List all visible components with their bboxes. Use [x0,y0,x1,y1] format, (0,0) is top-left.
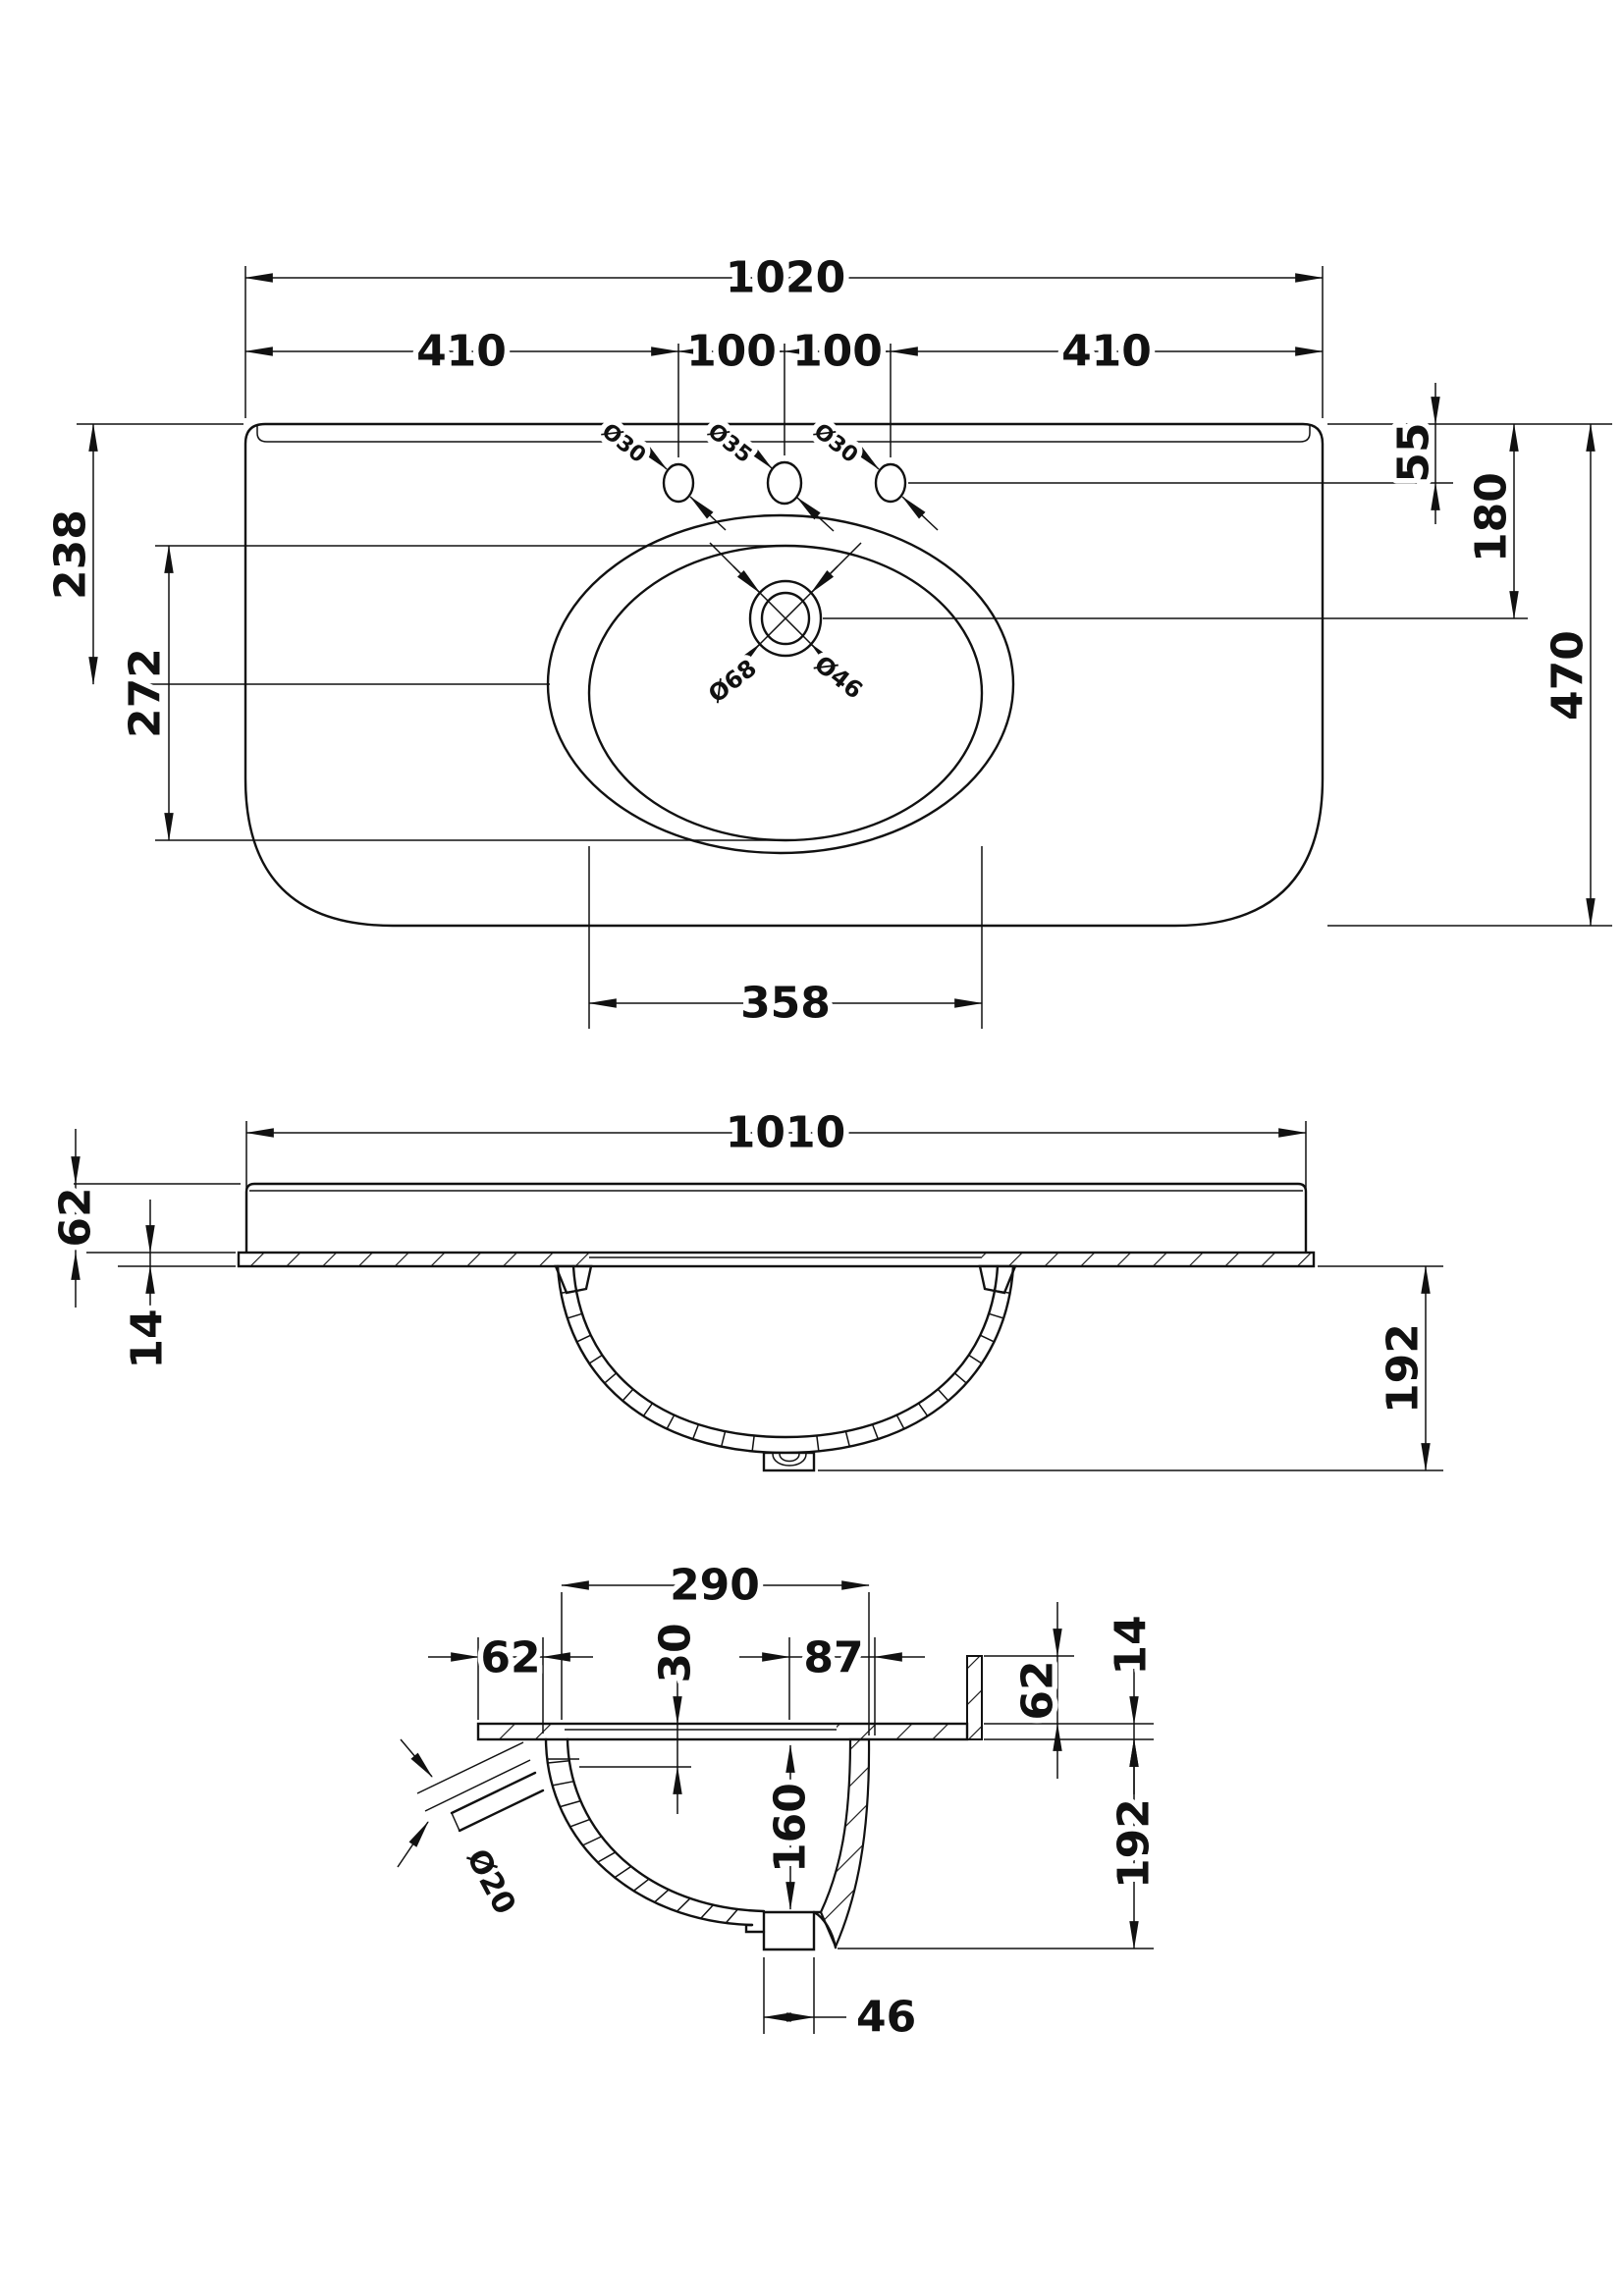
dim-side-counter-thickness: 14 [984,1615,1157,1794]
svg-text:30: 30 [651,1623,701,1682]
dim-front-bowl-drop: 192 [818,1266,1443,1470]
bowl-plan [548,515,1013,853]
section-hatch-left [239,1253,589,1266]
svg-text:87: 87 [803,1633,863,1683]
tap-holes: Ø30 Ø35 Ø30 [597,419,938,531]
svg-text:62: 62 [1013,1660,1063,1720]
dim-front-overhang: 62 [428,1633,593,1735]
svg-text:410: 410 [1061,327,1152,377]
upstand-front [246,1184,1306,1253]
svg-text:14: 14 [123,1308,173,1368]
basin-technical-drawing: Ø30 Ø35 Ø30 Ø68 Ø46 1020 [0,0,1623,2296]
svg-text:1020: 1020 [726,253,845,303]
dim-drain-inner: Ø46 [809,650,868,704]
bowl-inner-rim [589,546,982,840]
bowl-back-wall-section [821,1739,869,1947]
waste-stub-side [764,1912,814,1949]
overflow-tube [452,1773,543,1831]
svg-text:1010: 1010 [726,1108,845,1158]
svg-text:192: 192 [1109,1798,1160,1889]
drain-plan: Ø68 Ø46 [703,543,1528,709]
svg-text:238: 238 [46,509,96,600]
svg-text:100: 100 [686,327,777,377]
svg-text:180: 180 [1467,472,1517,562]
front-view: 1010 62 14 192 [51,1108,1444,1471]
top-view: Ø30 Ø35 Ø30 Ø68 Ø46 1020 [46,253,1613,1030]
dim-front-overall-width: 1010 [246,1108,1306,1252]
bowl-front-section [556,1266,1015,1470]
svg-text:46: 46 [856,1993,916,2043]
dim-rim-recess: 30 [579,1623,701,1814]
svg-text:410: 410 [416,327,507,377]
svg-text:14: 14 [1107,1615,1157,1675]
svg-text:470: 470 [1543,630,1594,721]
section-hatch-right [982,1253,1314,1266]
dim-tap-hole-right: Ø30 [809,419,862,468]
dim-waste-outlet-width: 46 [764,1957,916,2043]
svg-text:290: 290 [670,1561,760,1611]
dim-back-to-drain: 180 [1467,424,1517,618]
dim-front-counter-thickness: 14 [118,1200,236,1369]
bowl-cutout-outer [548,515,1013,853]
svg-text:272: 272 [121,648,171,738]
tap-hole-centre [768,462,801,504]
dim-bowl-inner-depth: 160 [766,1745,816,1909]
bowl-wall-hatch-ticks [561,1291,1009,1452]
dim-bowl-width: 358 [589,846,982,1029]
svg-text:192: 192 [1379,1323,1429,1414]
side-view: 290 62 30 87 [398,1561,1160,2043]
counter-board-side [478,1724,967,1739]
dim-tap-hole-left: Ø30 [597,419,650,468]
svg-text:55: 55 [1389,422,1439,482]
upstand-side [967,1656,982,1739]
svg-text:Ø20: Ø20 [460,1843,522,1920]
dim-front-upstand-height: 62 [51,1129,242,1308]
drawing-sheet: Ø30 Ø35 Ø30 Ø68 Ø46 1020 [0,0,1623,2296]
svg-text:160: 160 [766,1783,816,1873]
svg-text:358: 358 [740,979,831,1029]
dim-back-to-bowl-centre: 238 [46,424,551,684]
svg-text:62: 62 [480,1633,540,1683]
back-ledge-line [257,425,1310,442]
tap-hole-left [664,464,693,502]
counter-board-front [239,1253,1314,1266]
dim-side-bowl-drop: 192 [838,1739,1160,1949]
dim-drain-to-back: 87 [739,1633,925,1736]
dim-bowl-front-to-back: 272 [121,546,779,840]
stub-notch [746,1925,764,1932]
dim-drain-outer: Ø68 [703,654,762,708]
dim-tap-hole-chain: 410 100 100 410 [245,327,1323,458]
svg-text:100: 100 [792,327,883,377]
tap-hole-right [876,464,905,502]
svg-text:62: 62 [51,1187,101,1247]
dim-tap-hole-centre: Ø35 [703,419,756,468]
bowl-wall-hatch-ticks-side [548,1761,738,1923]
